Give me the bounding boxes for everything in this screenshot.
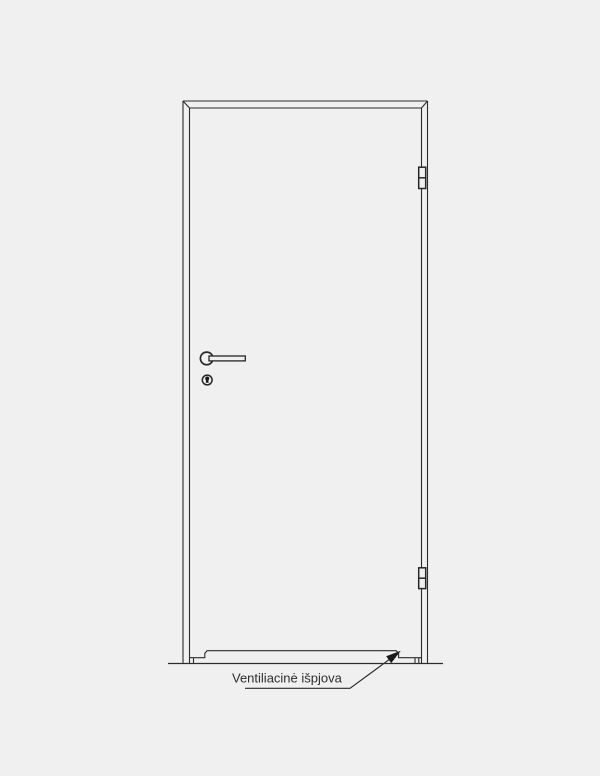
frame-miter-top-right [422, 101, 428, 108]
lever-handle [200, 352, 245, 365]
hinge-top [419, 167, 426, 188]
frame-miter-top-left [183, 101, 190, 108]
keyhole-stem [206, 380, 209, 383]
door-technical-drawing: Ventiliacinė išpjova [0, 0, 600, 776]
hinge-bottom [419, 568, 426, 589]
keyhole [202, 375, 212, 385]
door-frame [183, 101, 428, 664]
handle-lever-bar [209, 356, 245, 361]
ventilation-label: Ventiliacinė išpjova [232, 671, 343, 686]
drawing-svg: Ventiliacinė išpjova [0, 0, 600, 776]
